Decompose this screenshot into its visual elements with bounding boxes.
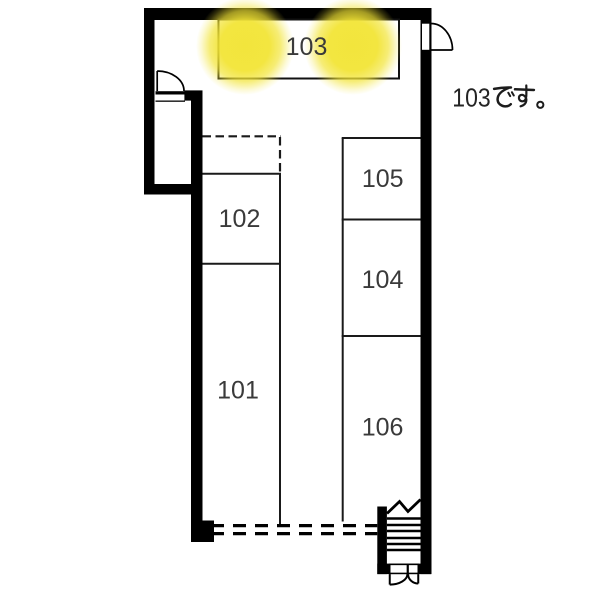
svg-text:102: 102: [219, 205, 261, 233]
svg-text:104: 104: [362, 266, 404, 294]
svg-text:103: 103: [286, 33, 328, 61]
svg-text:101: 101: [217, 377, 259, 405]
svg-text:103: 103: [452, 84, 490, 113]
svg-text:106: 106: [362, 414, 404, 442]
svg-text:105: 105: [362, 165, 404, 193]
